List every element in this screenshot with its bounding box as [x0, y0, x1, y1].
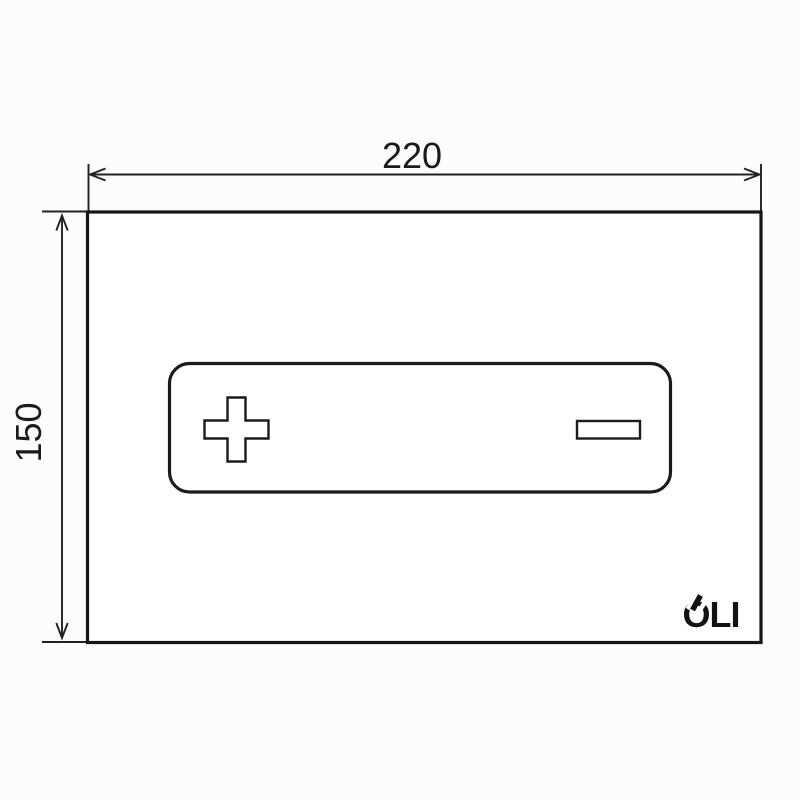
width-dimension-label: 220	[382, 135, 442, 176]
flush-plate-technical-drawing: 220 150 OLI	[0, 0, 800, 800]
drawing-canvas: 220 150 OLI	[0, 0, 800, 800]
brand-logo: OLI	[683, 594, 740, 635]
minus-icon	[577, 421, 640, 439]
height-dimension-label: 150	[8, 402, 49, 462]
